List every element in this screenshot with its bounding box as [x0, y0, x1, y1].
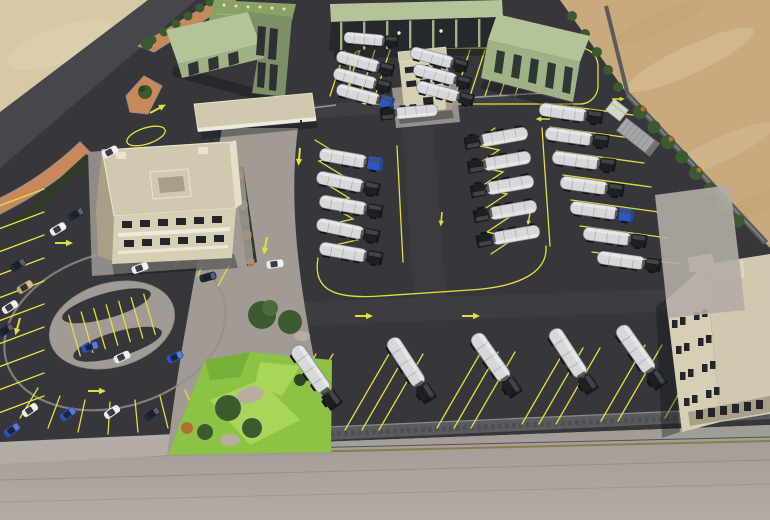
person: [439, 29, 442, 32]
person: [397, 31, 400, 34]
depot-render: [0, 0, 770, 520]
render-viewport: [0, 0, 770, 520]
main-office-building: [88, 140, 254, 276]
concrete-pad-east: [655, 185, 745, 318]
